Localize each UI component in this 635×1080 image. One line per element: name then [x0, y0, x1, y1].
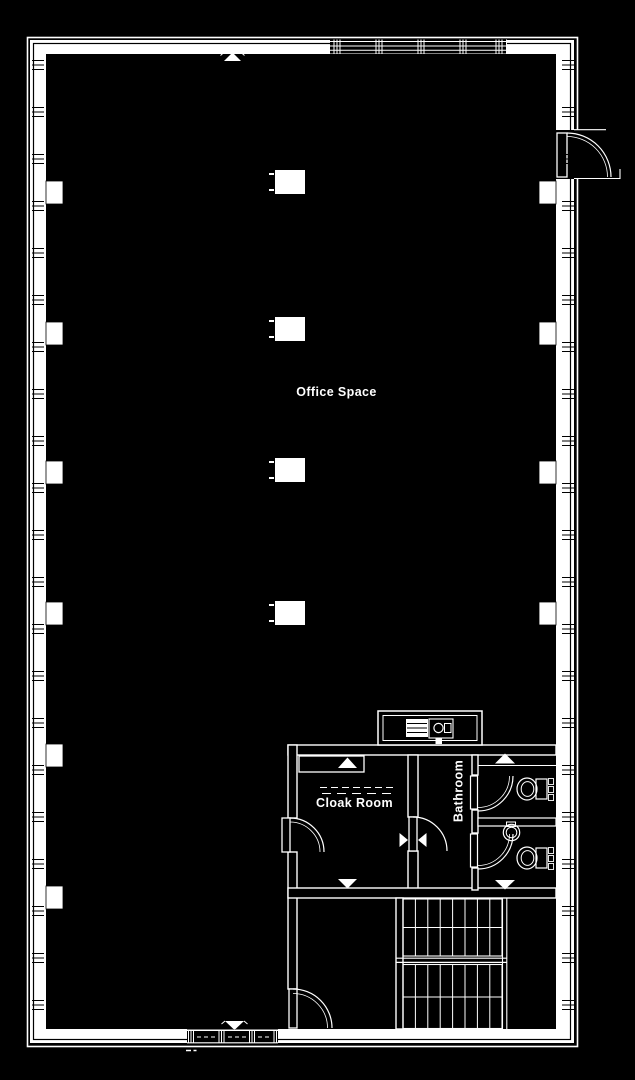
floor-plan: Office Space Cloak Room Bathroom — [0, 0, 635, 1080]
stair-hall-door — [289, 989, 332, 1028]
cloak-room — [282, 756, 395, 889]
door-swing-arc — [293, 989, 332, 1028]
office-space-label: Office Space — [276, 386, 397, 400]
cloak-room-door-leaf — [282, 818, 290, 852]
door-swing-arc — [413, 817, 447, 851]
door-swing-arc — [478, 776, 513, 811]
partition-walls — [288, 745, 556, 1029]
door-triangle-down-icon — [338, 879, 357, 889]
left-wall-window-dashes — [32, 60, 44, 1025]
window-band-top — [330, 40, 507, 54]
right-wall-window-dashes — [562, 60, 574, 1025]
stair-landing — [396, 958, 507, 962]
door-swing-arc — [290, 818, 324, 852]
door-triangle-down-icon — [225, 1021, 244, 1030]
toilet-icon — [517, 847, 554, 870]
stall-door-leaf — [471, 834, 478, 867]
cloak-room-label: Cloak Room — [294, 797, 415, 811]
stall-door-leaf — [471, 776, 478, 809]
staircase — [396, 898, 507, 1029]
cloak-bathroom-door — [400, 817, 448, 851]
bathroom-label: Bathroom — [453, 731, 467, 852]
toilet-icon — [517, 778, 554, 801]
floor-plan-drawing — [0, 0, 635, 1080]
